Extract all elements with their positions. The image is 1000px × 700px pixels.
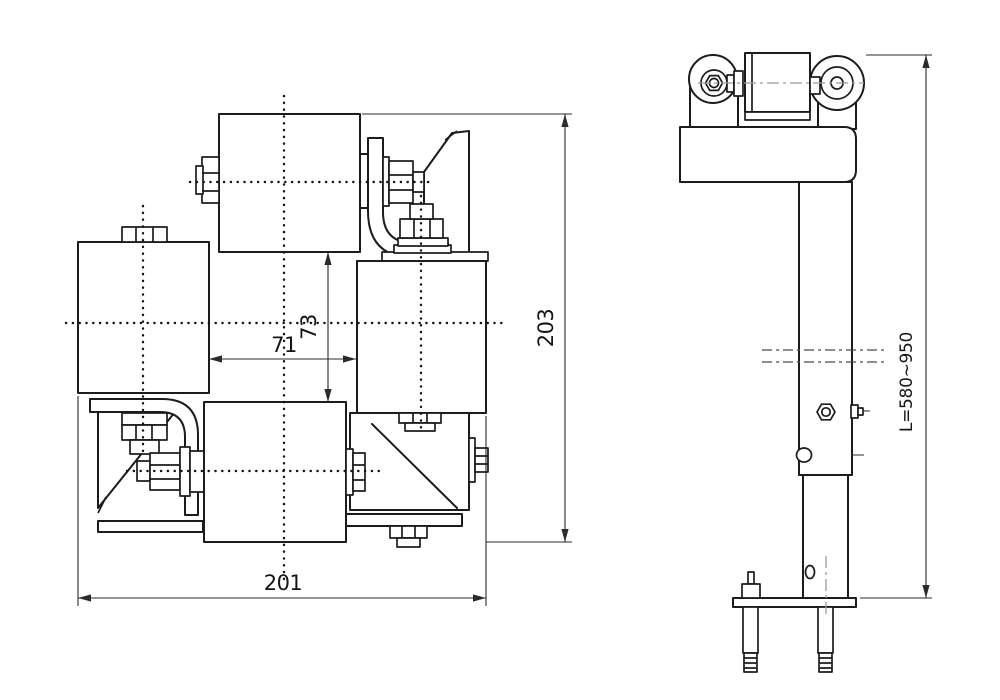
dim-label-201: 201: [264, 571, 303, 595]
dim-label-73: 73: [297, 314, 321, 340]
dimension-inner-width: 71: [209, 333, 356, 363]
head-block: [680, 127, 856, 182]
base-stud-top-shaft: [748, 572, 754, 584]
technical-drawing-sheet: 71 73 203 201: [0, 0, 1000, 700]
axle-stub-right: [810, 77, 820, 94]
base-stud-top-nut: [742, 584, 760, 598]
roller-left: [78, 227, 209, 393]
dimension-post-length: L=580~950: [860, 55, 932, 598]
mounting-plate-bottom-right: [346, 413, 488, 547]
front-view: 71 73 203 201: [66, 96, 572, 606]
roller-bracket-drawing: 71 73 203 201: [0, 0, 1000, 700]
bracket-top-right: [360, 131, 488, 261]
dimension-inner-height: 73: [297, 252, 332, 402]
bolt-horizontal-top: [383, 157, 424, 206]
tube-pin-hole: [797, 448, 812, 462]
anchor-stud-left: [743, 607, 758, 672]
dim-label-71: 71: [271, 333, 297, 357]
plate-side-bolt: [469, 438, 488, 482]
dim-label-203: 203: [534, 309, 558, 348]
side-view: L=580~950: [680, 53, 932, 672]
lower-tube-hole: [806, 566, 815, 579]
plate-bottom-bolt: [390, 526, 427, 547]
post-upper-tube: [797, 182, 871, 475]
trolley-wheel-left: [689, 55, 743, 103]
axle-block: [745, 53, 820, 120]
bracket-bottom-left: [90, 399, 204, 532]
tube-side-bolt: [851, 405, 858, 418]
anchor-stud-right: [818, 607, 833, 672]
dim-label-post-length: L=580~950: [897, 332, 917, 432]
